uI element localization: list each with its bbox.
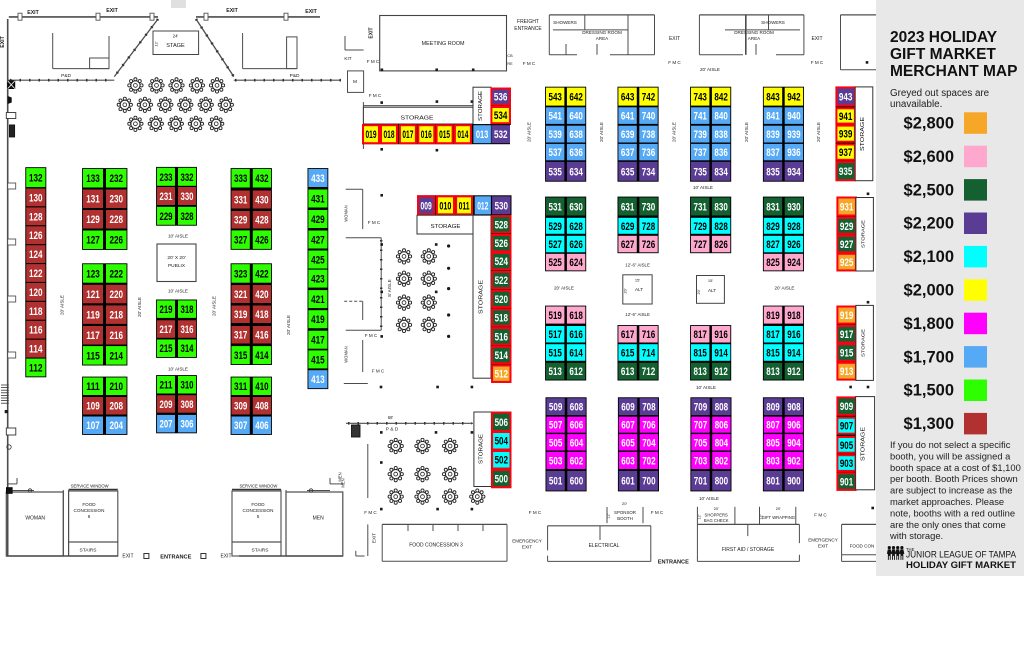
svg-text:FOOD CON: FOOD CON	[850, 544, 875, 549]
svg-text:809: 809	[766, 402, 779, 414]
svg-text:226: 226	[109, 235, 123, 247]
svg-text:F M C: F M C	[368, 220, 381, 225]
svg-text:24': 24'	[173, 34, 179, 39]
svg-text:SHOWERS: SHOWERS	[761, 20, 785, 25]
svg-text:602: 602	[570, 455, 583, 467]
svg-text:419: 419	[311, 314, 325, 326]
svg-text:20' AISLE: 20' AISLE	[212, 296, 217, 316]
svg-text:500: 500	[495, 474, 508, 486]
svg-text:836: 836	[714, 147, 727, 159]
svg-text:AREA: AREA	[748, 36, 761, 41]
svg-text:939: 939	[787, 129, 800, 141]
svg-text:230: 230	[109, 194, 123, 206]
svg-text:902: 902	[787, 455, 800, 467]
svg-text:637: 637	[621, 147, 634, 159]
svg-text:930: 930	[787, 202, 800, 214]
svg-text:market approaches. Please: market approaches. Please	[890, 496, 1004, 507]
svg-text:20' AISLE: 20' AISLE	[672, 122, 677, 142]
svg-text:432: 432	[255, 173, 268, 185]
svg-text:note, booths with a red outlin: note, booths with a red outline	[890, 507, 1015, 518]
svg-text:20' AISLE: 20' AISLE	[554, 286, 574, 291]
svg-text:509: 509	[549, 402, 562, 414]
svg-text:211: 211	[160, 380, 173, 392]
svg-text:525: 525	[549, 257, 562, 269]
svg-text:819: 819	[766, 310, 779, 322]
svg-text:918: 918	[787, 310, 800, 322]
svg-text:420: 420	[255, 289, 268, 301]
svg-text:are the only ones that come: are the only ones that come	[890, 519, 1006, 530]
svg-text:F M C: F M C	[529, 510, 542, 515]
svg-text:20' AISLE: 20' AISLE	[774, 286, 794, 291]
svg-text:333: 333	[234, 173, 247, 185]
svg-text:627: 627	[621, 239, 634, 251]
svg-text:10' AISLE: 10' AISLE	[693, 185, 713, 190]
svg-text:20' AISLE: 20' AISLE	[286, 315, 291, 335]
svg-text:BOOTH: BOOTH	[617, 516, 633, 521]
svg-text:115: 115	[86, 350, 100, 362]
svg-text:543: 543	[549, 92, 562, 104]
svg-text:121: 121	[86, 289, 100, 301]
svg-text:408: 408	[255, 401, 268, 413]
svg-text:912: 912	[714, 366, 727, 378]
svg-text:20' AISLE: 20' AISLE	[60, 295, 65, 315]
svg-text:914: 914	[787, 348, 801, 360]
svg-text:535: 535	[549, 166, 562, 178]
svg-text:019: 019	[366, 129, 377, 141]
svg-text:$2,200: $2,200	[904, 215, 954, 233]
svg-text:STORAGE: STORAGE	[401, 116, 435, 122]
svg-text:532: 532	[494, 129, 508, 141]
svg-text:MERCHANT MAP: MERCHANT MAP	[890, 63, 1017, 80]
svg-text:924: 924	[787, 257, 801, 269]
svg-text:526: 526	[495, 238, 508, 250]
svg-text:919: 919	[840, 310, 854, 322]
svg-text:608: 608	[570, 402, 583, 414]
svg-text:528: 528	[495, 219, 508, 231]
svg-text:MEN: MEN	[313, 516, 325, 522]
svg-text:HOLIDAY GIFT MARKET: HOLIDAY GIFT MARKET	[906, 560, 1016, 571]
svg-text:10' AISLE: 10' AISLE	[168, 367, 188, 372]
svg-text:731: 731	[694, 202, 707, 214]
svg-text:739: 739	[694, 129, 707, 141]
svg-text:233: 233	[160, 172, 173, 184]
svg-text:WOMAN: WOMAN	[344, 205, 349, 222]
svg-text:20' AISLE: 20' AISLE	[816, 122, 821, 142]
svg-text:929: 929	[840, 221, 854, 233]
svg-text:SHOWERS: SHOWERS	[553, 20, 577, 25]
svg-text:013: 013	[476, 129, 489, 141]
svg-text:926: 926	[787, 239, 800, 251]
svg-text:014: 014	[457, 129, 468, 141]
svg-text:714: 714	[642, 348, 656, 360]
svg-text:612: 612	[569, 366, 582, 378]
svg-text:If you do not select a specifi: If you do not select a specific	[890, 439, 1011, 450]
svg-text:F M C: F M C	[369, 93, 382, 98]
svg-text:12': 12'	[154, 41, 159, 46]
svg-text:20': 20'	[714, 506, 719, 511]
svg-text:916: 916	[714, 329, 727, 341]
svg-text:120: 120	[29, 287, 43, 299]
svg-text:900: 900	[787, 476, 800, 488]
svg-text:524: 524	[495, 256, 509, 268]
svg-text:626: 626	[569, 239, 582, 251]
svg-text:011: 011	[459, 200, 470, 212]
svg-text:20' AISLE: 20' AISLE	[599, 122, 604, 142]
svg-text:308: 308	[181, 399, 194, 411]
svg-text:927: 927	[840, 239, 854, 251]
svg-text:914: 914	[714, 348, 728, 360]
svg-text:829: 829	[766, 221, 779, 233]
svg-text:513: 513	[549, 366, 562, 378]
svg-text:736: 736	[642, 147, 655, 159]
svg-text:ALT: ALT	[635, 287, 643, 292]
svg-text:640: 640	[569, 111, 582, 123]
svg-text:220: 220	[109, 289, 123, 301]
svg-text:204: 204	[109, 420, 123, 432]
svg-text:802: 802	[715, 455, 728, 467]
svg-text:616: 616	[569, 329, 582, 341]
svg-text:122: 122	[29, 268, 43, 280]
svg-text:209: 209	[160, 399, 173, 411]
svg-text:009: 009	[421, 200, 432, 212]
svg-text:702: 702	[642, 455, 655, 467]
svg-text:118: 118	[29, 306, 43, 318]
svg-text:5: 5	[257, 514, 260, 519]
svg-text:831: 831	[766, 202, 779, 214]
svg-text:837: 837	[766, 147, 779, 159]
svg-text:208: 208	[109, 401, 123, 413]
svg-text:130: 130	[29, 192, 43, 204]
svg-text:booth, you will be assigned a: booth, you will be assigned a	[890, 450, 1011, 461]
svg-text:10' AISLE: 10' AISLE	[696, 385, 716, 390]
svg-text:805: 805	[766, 437, 779, 449]
svg-text:KIT: KIT	[344, 56, 351, 61]
svg-text:425: 425	[311, 255, 325, 267]
svg-text:817: 817	[694, 329, 707, 341]
svg-text:EXIT: EXIT	[372, 533, 377, 543]
svg-text:EXIT: EXIT	[27, 10, 39, 16]
svg-text:708: 708	[642, 402, 655, 414]
svg-text:601: 601	[621, 476, 634, 488]
svg-text:939: 939	[839, 129, 853, 141]
svg-text:$2,600: $2,600	[904, 148, 954, 166]
svg-text:804: 804	[715, 437, 729, 449]
svg-text:414: 414	[255, 350, 269, 362]
svg-text:935: 935	[839, 166, 853, 178]
svg-text:527: 527	[549, 239, 562, 251]
svg-text:734: 734	[642, 166, 656, 178]
svg-text:131: 131	[86, 194, 100, 206]
svg-text:010: 010	[439, 200, 451, 212]
svg-text:315: 315	[234, 350, 247, 362]
svg-text:537: 537	[549, 147, 562, 159]
svg-text:630: 630	[569, 202, 582, 214]
svg-text:636: 636	[569, 147, 582, 159]
svg-text:826: 826	[714, 239, 727, 251]
svg-text:219: 219	[160, 304, 173, 316]
svg-text:216: 216	[109, 330, 123, 342]
svg-text:306: 306	[181, 419, 194, 431]
svg-text:628: 628	[569, 221, 582, 233]
svg-text:706: 706	[642, 420, 655, 432]
svg-text:129: 129	[86, 214, 100, 226]
svg-text:20': 20'	[622, 501, 627, 506]
svg-text:504: 504	[495, 436, 509, 448]
svg-text:P & D: P & D	[386, 427, 399, 433]
svg-text:114: 114	[29, 344, 43, 356]
svg-text:unavailable.: unavailable.	[890, 99, 942, 110]
svg-text:916: 916	[787, 329, 800, 341]
svg-text:232: 232	[109, 173, 123, 185]
svg-text:CONCESSION: CONCESSION	[74, 508, 105, 513]
svg-text:STORAGE: STORAGE	[479, 433, 485, 464]
svg-text:EXIT: EXIT	[122, 554, 133, 560]
svg-text:716: 716	[642, 329, 655, 341]
svg-text:917: 917	[840, 329, 854, 341]
svg-text:605: 605	[621, 437, 634, 449]
svg-text:925: 925	[840, 257, 854, 269]
svg-text:FOOD: FOOD	[82, 502, 96, 507]
svg-text:P&D: P&D	[290, 73, 300, 79]
svg-text:931: 931	[840, 202, 854, 214]
svg-text:JUNIOR LEAGUE OF TAMPA: JUNIOR LEAGUE OF TAMPA	[906, 550, 1016, 560]
svg-text:F M C: F M C	[811, 60, 824, 65]
svg-text:307: 307	[234, 420, 247, 432]
svg-text:$2,000: $2,000	[904, 282, 954, 300]
svg-text:936: 936	[787, 147, 800, 159]
svg-text:$1,300: $1,300	[904, 415, 954, 433]
svg-text:STAGE: STAGE	[166, 43, 185, 49]
svg-text:F M C: F M C	[523, 61, 536, 66]
svg-text:F M C: F M C	[814, 513, 827, 518]
svg-text:600: 600	[570, 476, 583, 488]
svg-text:20': 20'	[776, 506, 781, 511]
svg-text:STORAGE: STORAGE	[860, 116, 866, 151]
svg-text:STORAGE: STORAGE	[861, 329, 867, 357]
svg-text:329: 329	[234, 215, 247, 227]
svg-text:838: 838	[714, 129, 727, 141]
svg-text:F M C: F M C	[365, 333, 378, 338]
svg-text:F M C: F M C	[372, 369, 385, 374]
svg-text:314: 314	[181, 343, 195, 355]
svg-text:843: 843	[766, 92, 779, 104]
svg-text:12'-6" AISLE: 12'-6" AISLE	[625, 263, 650, 268]
svg-text:712: 712	[642, 366, 655, 378]
svg-text:STAIRS: STAIRS	[80, 548, 97, 554]
svg-text:016: 016	[421, 129, 432, 141]
svg-text:218: 218	[109, 310, 123, 322]
svg-text:522: 522	[495, 275, 508, 287]
svg-text:642: 642	[569, 92, 582, 104]
svg-text:DRESSING ROOM: DRESSING ROOM	[734, 30, 774, 35]
svg-text:842: 842	[714, 92, 727, 104]
svg-text:015: 015	[439, 129, 450, 141]
svg-text:422: 422	[255, 268, 268, 280]
svg-text:231: 231	[160, 191, 173, 203]
svg-text:EMERGENCY: EMERGENCY	[512, 539, 542, 544]
svg-text:RE: RE	[507, 62, 513, 66]
svg-text:934: 934	[787, 166, 801, 178]
svg-text:807: 807	[766, 420, 779, 432]
svg-text:107: 107	[86, 420, 100, 432]
svg-text:808: 808	[715, 402, 728, 414]
svg-text:ENTRANCE: ENTRANCE	[160, 555, 191, 561]
svg-text:332: 332	[181, 172, 194, 184]
svg-text:903: 903	[840, 458, 853, 470]
svg-text:DRESSING ROOM: DRESSING ROOM	[582, 30, 622, 35]
svg-text:518: 518	[495, 313, 508, 325]
svg-text:10' AISLE: 10' AISLE	[168, 288, 188, 293]
svg-text:STAIRS: STAIRS	[252, 548, 269, 554]
svg-text:410: 410	[255, 381, 268, 393]
svg-text:8' AISLE: 8' AISLE	[387, 279, 392, 296]
svg-text:AREA: AREA	[596, 36, 609, 41]
svg-text:906: 906	[787, 420, 800, 432]
svg-text:20' AISLE: 20' AISLE	[744, 122, 749, 142]
svg-text:228: 228	[109, 214, 123, 226]
svg-text:629: 629	[621, 221, 634, 233]
svg-text:913: 913	[840, 366, 854, 378]
svg-text:MEN: MEN	[341, 478, 346, 487]
svg-text:$1,700: $1,700	[904, 348, 954, 366]
svg-text:EXIT: EXIT	[220, 554, 231, 560]
svg-text:429: 429	[311, 214, 325, 226]
svg-text:20' AISLE: 20' AISLE	[700, 67, 720, 72]
svg-text:ENTRANCE: ENTRANCE	[658, 560, 689, 566]
svg-text:707: 707	[694, 420, 707, 432]
svg-text:735: 735	[694, 166, 707, 178]
svg-text:EXIT: EXIT	[106, 8, 118, 14]
svg-text:638: 638	[569, 129, 582, 141]
svg-text:801: 801	[766, 476, 779, 488]
svg-text:937: 937	[839, 147, 853, 159]
svg-text:FOOD: FOOD	[251, 502, 265, 507]
svg-text:F M C: F M C	[367, 59, 380, 64]
svg-text:618: 618	[569, 310, 582, 322]
svg-text:117: 117	[86, 330, 100, 342]
svg-text:803: 803	[766, 455, 779, 467]
svg-text:643: 643	[621, 92, 634, 104]
svg-text:530: 530	[495, 200, 508, 212]
svg-text:634: 634	[569, 166, 583, 178]
svg-text:517: 517	[549, 329, 562, 341]
svg-text:423: 423	[311, 274, 325, 286]
svg-text:737: 737	[694, 147, 707, 159]
svg-text:624: 624	[569, 257, 583, 269]
svg-text:124: 124	[29, 249, 43, 261]
svg-text:742: 742	[642, 92, 655, 104]
svg-text:705: 705	[694, 437, 707, 449]
svg-text:$1,500: $1,500	[904, 382, 954, 400]
svg-text:321: 321	[234, 289, 247, 301]
svg-text:ENTRANCE: ENTRANCE	[514, 26, 542, 32]
svg-text:STORAGE: STORAGE	[478, 90, 484, 121]
svg-text:813: 813	[694, 366, 707, 378]
svg-text:M: M	[353, 79, 357, 85]
svg-text:806: 806	[715, 420, 728, 432]
svg-text:613: 613	[621, 366, 634, 378]
svg-text:116: 116	[29, 325, 43, 337]
svg-text:617: 617	[621, 329, 634, 341]
svg-text:BAG CHECK: BAG CHECK	[704, 518, 729, 523]
svg-text:6: 6	[88, 514, 91, 519]
svg-text:331: 331	[234, 195, 247, 207]
svg-text:433: 433	[311, 173, 325, 185]
svg-text:FIRST AID / STORAGE: FIRST AID / STORAGE	[722, 547, 775, 553]
svg-text:EXIT: EXIT	[226, 8, 238, 14]
svg-text:F M C: F M C	[651, 510, 664, 515]
svg-text:222: 222	[109, 268, 123, 280]
svg-text:505: 505	[549, 437, 562, 449]
svg-text:12'-6" AISLE: 12'-6" AISLE	[625, 312, 650, 317]
svg-text:614: 614	[569, 348, 583, 360]
svg-text:427: 427	[311, 235, 325, 247]
svg-text:10' AISLE: 10' AISLE	[168, 234, 188, 239]
svg-text:311: 311	[234, 381, 247, 393]
svg-text:428: 428	[255, 215, 268, 227]
svg-text:WOMAN: WOMAN	[344, 346, 349, 363]
svg-text:827: 827	[766, 239, 779, 251]
svg-text:per booth. Booth Prices shown: per booth. Booth Prices shown	[890, 473, 1018, 484]
svg-text:CONCESSION: CONCESSION	[243, 508, 274, 513]
svg-text:210: 210	[109, 381, 123, 393]
svg-text:514: 514	[495, 350, 509, 362]
svg-text:018: 018	[384, 129, 395, 141]
svg-text:531: 531	[549, 202, 562, 214]
svg-text:738: 738	[642, 129, 655, 141]
svg-text:700: 700	[642, 476, 655, 488]
svg-text:330: 330	[181, 191, 194, 203]
svg-text:520: 520	[495, 294, 508, 306]
svg-text:728: 728	[642, 221, 655, 233]
svg-text:908: 908	[787, 402, 800, 414]
svg-text:FREIGHT: FREIGHT	[517, 19, 539, 25]
svg-text:416: 416	[255, 330, 268, 342]
svg-text:515: 515	[549, 348, 562, 360]
svg-text:SHOPPERS: SHOPPERS	[705, 513, 728, 518]
svg-text:ALT: ALT	[708, 288, 716, 293]
svg-text:536: 536	[494, 92, 508, 104]
svg-text:SPONSOR: SPONSOR	[614, 510, 636, 515]
svg-text:with storage.: with storage.	[889, 530, 943, 541]
svg-text:017: 017	[402, 129, 413, 141]
svg-text:217: 217	[160, 324, 173, 336]
svg-text:20': 20'	[697, 289, 701, 294]
svg-text:406: 406	[255, 420, 268, 432]
svg-text:112: 112	[29, 363, 43, 375]
svg-text:MEETING ROOM: MEETING ROOM	[422, 41, 465, 47]
svg-text:426: 426	[255, 235, 268, 247]
svg-text:743: 743	[694, 92, 707, 104]
svg-text:839: 839	[766, 129, 779, 141]
svg-text:EXIT: EXIT	[669, 36, 680, 42]
svg-text:WOMAN: WOMAN	[25, 516, 45, 522]
svg-text:512: 512	[495, 369, 508, 381]
svg-text:740: 740	[642, 111, 655, 123]
svg-text:800: 800	[715, 476, 728, 488]
svg-text:529: 529	[549, 221, 562, 233]
svg-text:316: 316	[181, 324, 194, 336]
svg-text:828: 828	[714, 221, 727, 233]
svg-text:012: 012	[477, 200, 488, 212]
svg-text:641: 641	[621, 111, 634, 123]
svg-text:915: 915	[840, 348, 854, 360]
svg-text:EXIT: EXIT	[305, 9, 317, 15]
svg-text:502: 502	[495, 455, 508, 467]
svg-text:943: 943	[839, 91, 853, 103]
svg-text:$2,100: $2,100	[904, 248, 954, 266]
svg-text:15': 15'	[635, 278, 640, 283]
